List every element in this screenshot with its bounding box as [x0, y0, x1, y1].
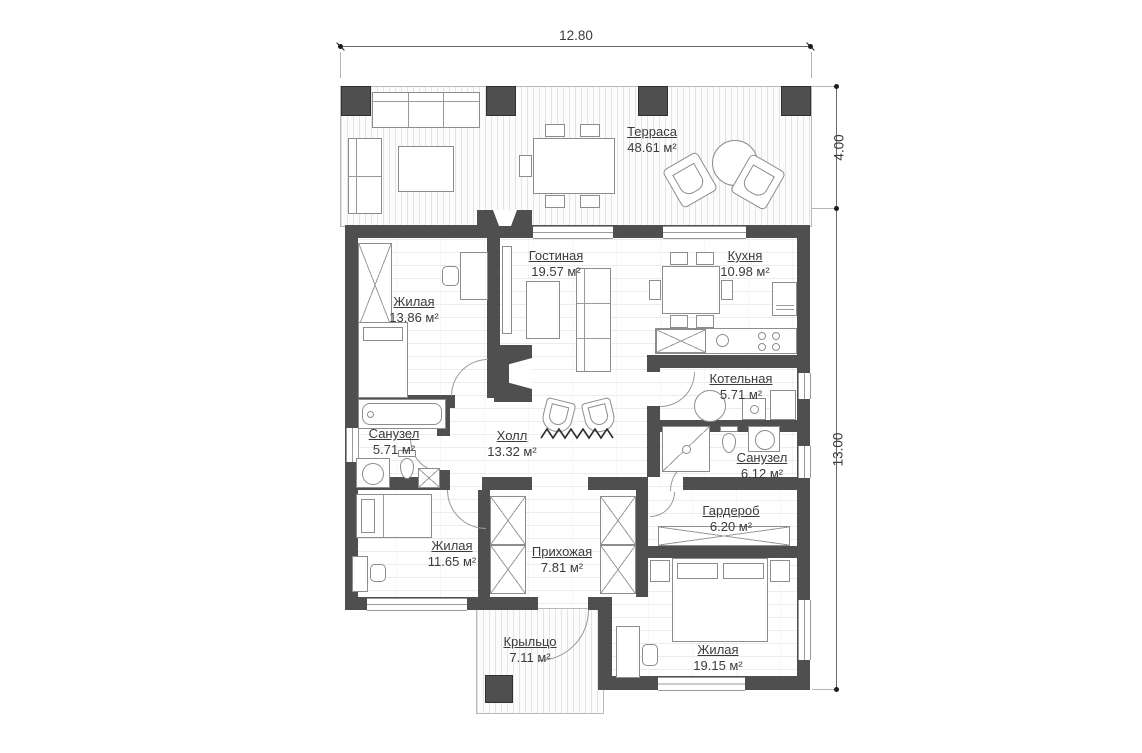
dimension-endpoint — [834, 687, 839, 692]
closet-symbol — [600, 545, 636, 594]
desk-symbol — [352, 556, 368, 592]
stove-burner-symbol — [758, 343, 766, 351]
wall — [598, 610, 612, 676]
chair-symbol — [519, 155, 532, 177]
closet-symbol — [490, 545, 526, 594]
wall — [648, 546, 797, 558]
wall — [588, 597, 612, 610]
room-label-bathroom2: Санузел6.12 м² — [737, 450, 788, 481]
fireplace-symbol — [494, 345, 532, 402]
chair-symbol — [670, 315, 688, 328]
chair-symbol — [580, 124, 600, 137]
extension-line — [812, 208, 834, 209]
window — [367, 598, 467, 611]
chimney-block — [477, 210, 532, 238]
extension-line — [812, 689, 834, 690]
fridge-symbol — [772, 282, 797, 316]
kitchen-sink-symbol — [716, 334, 729, 347]
vanity-symbol — [418, 468, 440, 488]
stove-burner-symbol — [758, 332, 766, 340]
room-label-living: Гостиная19.57 м² — [529, 248, 584, 279]
chair-symbol — [696, 315, 714, 328]
sink-symbol — [748, 426, 780, 452]
terrace-coffee-table-symbol — [398, 146, 454, 192]
wall — [647, 355, 660, 372]
window — [663, 226, 746, 239]
terrace-sliding-door — [533, 226, 613, 239]
terrace-sofa-symbol — [372, 92, 480, 128]
right-dimension-line — [836, 86, 837, 690]
window — [346, 428, 359, 462]
shower-symbol — [662, 426, 710, 472]
chair-symbol — [642, 644, 658, 666]
terrace-column — [639, 87, 667, 115]
cabinet-symbol — [656, 329, 706, 353]
sink-symbol — [356, 458, 390, 488]
extension-line — [812, 86, 834, 87]
window — [798, 446, 811, 478]
room-label-wardrobe: Гардероб6.20 м² — [702, 503, 759, 534]
sofa-symbol — [576, 268, 611, 372]
room-label-terrace: Терраса48.61 м² — [627, 124, 677, 155]
chair-symbol — [370, 564, 386, 582]
room-label-boiler: Котельная5.71 м² — [710, 371, 773, 402]
water-heater-symbol — [770, 390, 796, 420]
window — [798, 373, 811, 399]
wall — [482, 477, 532, 490]
radiator-zigzag-symbol — [540, 428, 618, 440]
terrace-depth-label: 4.00 — [832, 128, 847, 168]
wall — [636, 490, 648, 597]
top-dimension-line — [340, 46, 812, 47]
terrace-dining-table-symbol — [533, 138, 615, 194]
toilet-tank-symbol — [720, 426, 738, 432]
bed-symbol — [358, 322, 408, 398]
nightstand-symbol — [770, 560, 790, 582]
tv-unit-symbol — [502, 246, 512, 334]
desk-symbol — [460, 252, 488, 300]
double-bed-symbol — [672, 558, 768, 642]
terrace-column — [782, 87, 810, 115]
room-label-entry: Прихожая7.81 м² — [532, 544, 592, 575]
desk-symbol — [616, 626, 640, 678]
room-label-kitchen: Кухня10.98 м² — [720, 248, 769, 279]
coffee-table-symbol — [526, 281, 560, 339]
room-label-porch: Крыльцо7.11 м² — [503, 634, 556, 665]
wall — [647, 355, 797, 368]
stove-burner-symbol — [772, 343, 780, 351]
chair-symbol — [696, 252, 714, 265]
room-label-bedroom2: Жилая11.65 м² — [428, 538, 476, 569]
room-label-hall: Холл13.32 м² — [487, 428, 536, 459]
terrace-sofa-symbol — [348, 138, 382, 214]
chair-symbol — [545, 124, 565, 137]
wardrobe-symbol — [358, 243, 392, 327]
terrace-column — [342, 87, 370, 115]
porch-column — [486, 676, 512, 702]
chair-symbol — [580, 195, 600, 208]
room-label-bathroom1: Санузел5.71 м² — [369, 426, 420, 457]
chair-symbol — [649, 280, 661, 300]
chair-symbol — [670, 252, 688, 265]
dimension-endpoint — [834, 206, 839, 211]
closet-symbol — [600, 496, 636, 545]
wall — [345, 238, 358, 610]
extension-line — [340, 52, 341, 78]
wall — [490, 597, 538, 610]
bed-symbol — [356, 494, 432, 538]
house-depth-label: 13.00 — [831, 427, 846, 473]
dimension-endpoint — [834, 84, 839, 89]
wall — [647, 406, 660, 477]
chair-symbol — [545, 195, 565, 208]
stove-burner-symbol — [772, 332, 780, 340]
window — [798, 600, 811, 660]
window — [658, 677, 745, 691]
room-label-bedroom3: Жилая19.15 м² — [693, 642, 742, 673]
bathtub-symbol — [358, 399, 446, 429]
chair-symbol — [721, 280, 733, 300]
floor-plan-canvas: 12.80 4.00 13.00 — [0, 0, 1142, 753]
terrace-column — [487, 87, 515, 115]
chair-symbol — [442, 266, 459, 286]
width-dimension-label: 12.80 — [546, 28, 606, 43]
closet-symbol — [490, 496, 526, 545]
kitchen-table-symbol — [662, 266, 720, 314]
extension-line — [811, 52, 812, 78]
nightstand-symbol — [650, 560, 670, 582]
wall — [588, 477, 648, 490]
room-label-bedroom1: Жилая13.86 м² — [389, 294, 438, 325]
